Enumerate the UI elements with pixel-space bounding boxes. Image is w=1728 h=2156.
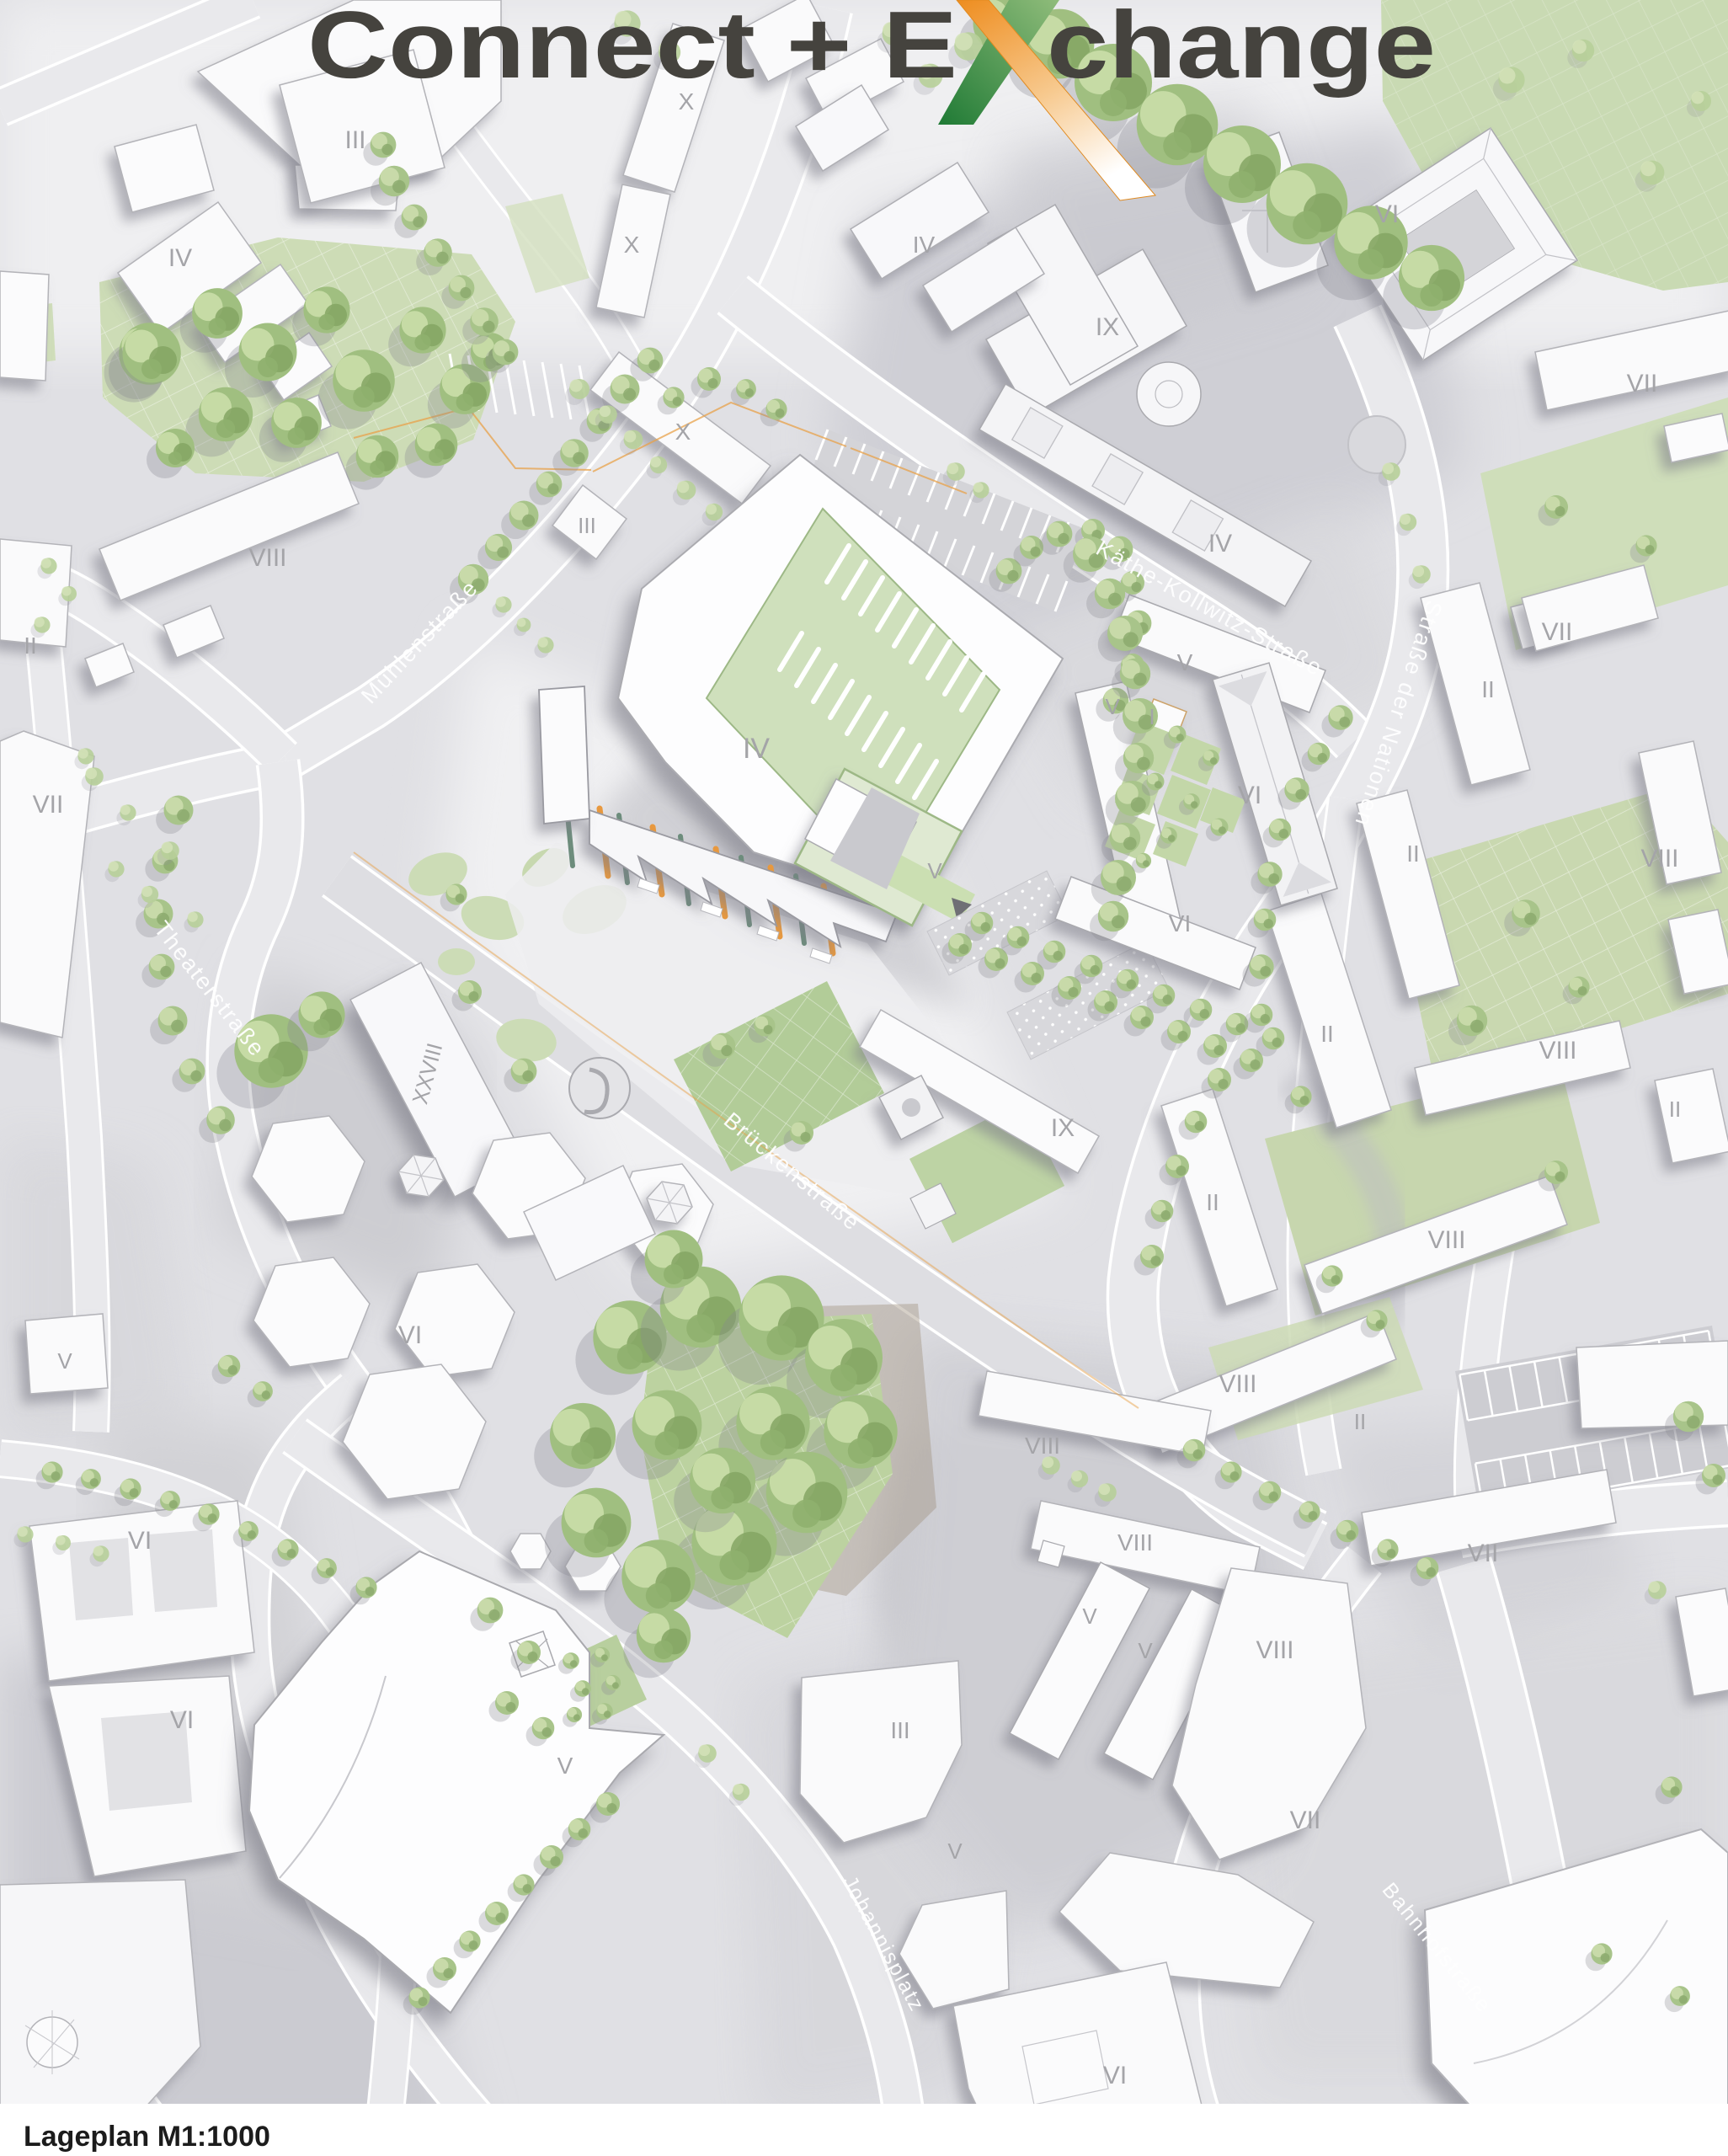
svg-text:VI: VI (1169, 910, 1191, 937)
svg-text:VI: VI (1238, 782, 1261, 809)
svg-text:IX: IX (1051, 1114, 1075, 1142)
svg-text:V: V (57, 1348, 72, 1374)
svg-text:VIII: VIII (1640, 845, 1678, 873)
svg-text:VI: VI (1103, 2062, 1127, 2089)
svg-text:VIII: VIII (1025, 1433, 1060, 1459)
svg-text:VIII: VIII (1539, 1037, 1576, 1065)
svg-text:V: V (1105, 694, 1120, 719)
svg-text:II: II (1320, 1021, 1334, 1047)
svg-text:VIII: VIII (1117, 1529, 1153, 1556)
svg-text:II: II (1669, 1097, 1681, 1122)
svg-text:VII: VII (33, 791, 64, 819)
svg-text:IV: IV (743, 733, 770, 765)
svg-text:II: II (1354, 1409, 1366, 1434)
svg-text:VIII: VIII (248, 544, 286, 572)
svg-text:II: II (1481, 676, 1495, 702)
svg-text:VIII: VIII (1219, 1370, 1256, 1398)
svg-text:V: V (927, 858, 942, 883)
svg-text:IV: IV (913, 232, 936, 258)
svg-text:V: V (1082, 1604, 1097, 1629)
svg-text:III: III (578, 513, 596, 538)
svg-text:Connect + E: Connect + E (307, 0, 957, 98)
svg-text:IV: IV (168, 244, 192, 272)
svg-text:V: V (1138, 1638, 1153, 1663)
svg-text:V: V (1177, 649, 1193, 675)
svg-text:I: I (1149, 704, 1155, 729)
svg-text:V: V (947, 1838, 963, 1864)
svg-text:VIII: VIII (1256, 1636, 1293, 1664)
svg-text:II: II (1206, 1189, 1219, 1215)
svg-text:IX: IX (1096, 313, 1119, 341)
svg-text:II: II (1406, 841, 1420, 867)
svg-text:VI: VI (1375, 200, 1399, 228)
svg-text:VII: VII (1290, 1806, 1321, 1834)
svg-text:change: change (1047, 0, 1436, 98)
svg-text:VII: VII (1542, 618, 1573, 646)
svg-text:VII: VII (1627, 370, 1658, 398)
svg-text:X: X (624, 232, 640, 258)
svg-text:IV: IV (1208, 530, 1232, 558)
svg-text:V: V (557, 1753, 573, 1779)
svg-text:VII: VII (1468, 1540, 1499, 1567)
svg-text:Lageplan M1:1000: Lageplan M1:1000 (24, 2121, 270, 2153)
svg-text:III: III (890, 1717, 909, 1743)
svg-text:VI: VI (398, 1321, 422, 1349)
svg-text:X: X (675, 419, 691, 445)
svg-text:II: II (24, 632, 37, 659)
svg-text:VI: VI (128, 1527, 152, 1555)
svg-text:III: III (344, 126, 365, 154)
svg-text:VI: VI (170, 1706, 194, 1734)
svg-text:VIII: VIII (1427, 1226, 1465, 1254)
